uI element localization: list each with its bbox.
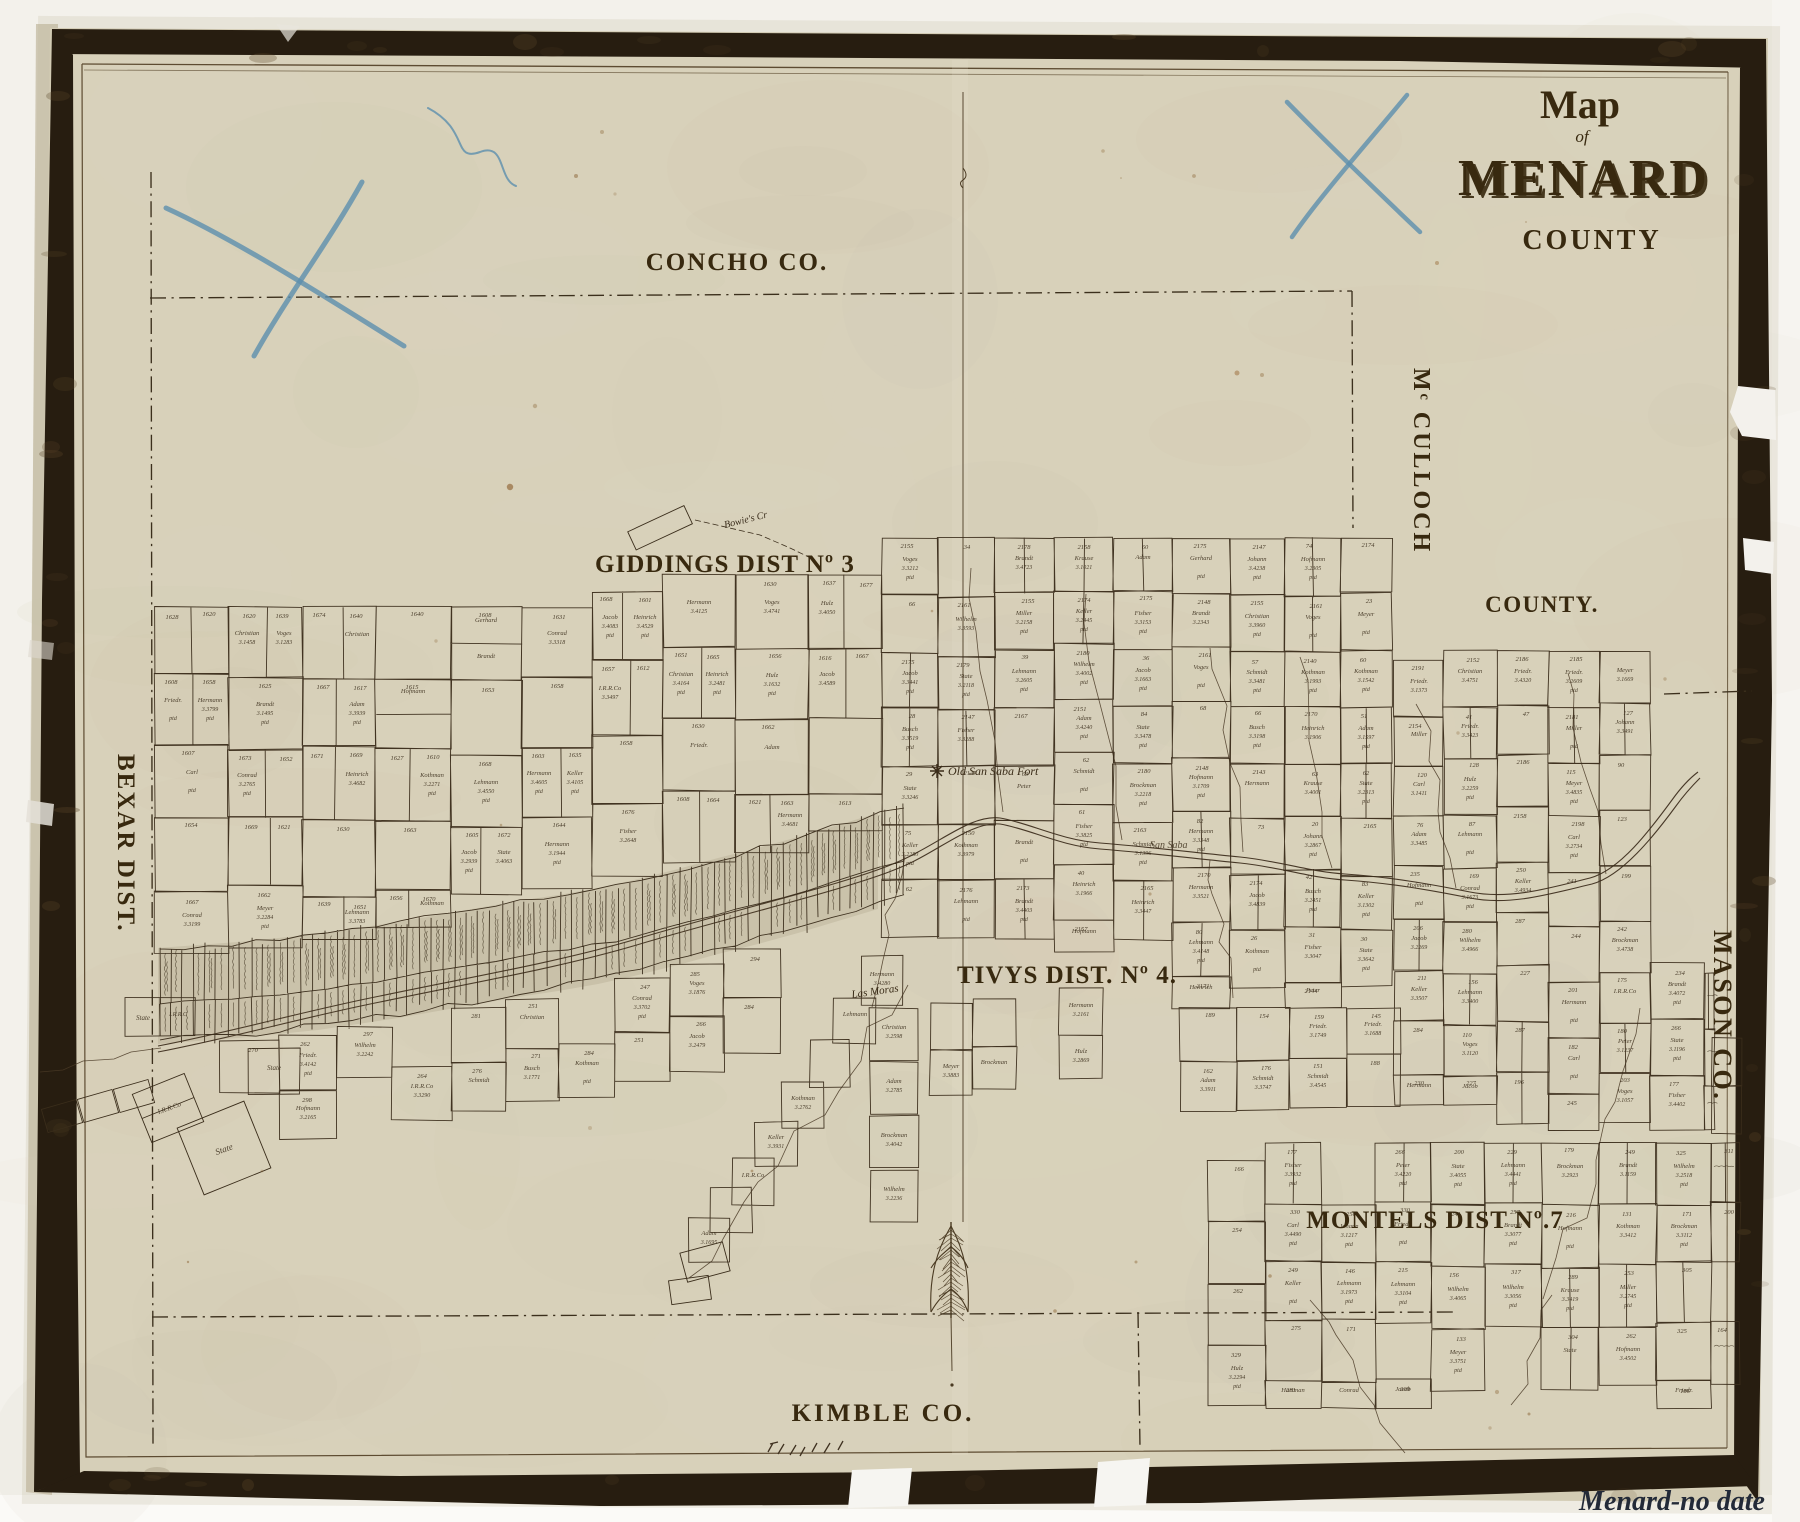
svg-text:State: State [1360,947,1373,954]
svg-text:2143: 2143 [1253,769,1267,776]
svg-text:Lehmann: Lehmann [1390,1281,1415,1288]
svg-text:1605: 1605 [466,832,480,839]
svg-text:68: 68 [1200,705,1207,712]
svg-text:1612: 1612 [637,665,651,672]
svg-text:2165: 2165 [1141,885,1155,892]
svg-text:Kothman: Kothman [419,900,444,907]
svg-text:ptd: ptd [260,924,270,930]
svg-text:3.1906: 3.1906 [1304,735,1322,741]
svg-text:Hulz: Hulz [1074,1048,1088,1055]
svg-text:Lehmann: Lehmann [1188,939,1213,946]
svg-text:Schmidt: Schmidt [1247,669,1268,676]
svg-text:Hermann: Hermann [777,812,803,819]
svg-text:3.1542: 3.1542 [1357,677,1375,684]
svg-text:2161: 2161 [1199,652,1212,659]
svg-text:ptd: ptd [1569,688,1579,694]
svg-text:249: 249 [1288,1267,1299,1274]
svg-text:162: 162 [1203,1068,1214,1075]
svg-text:ptd: ptd [1361,744,1371,750]
svg-text:CONCHO CO.: CONCHO CO. [646,249,829,276]
svg-text:2185: 2185 [1570,656,1584,663]
svg-text:3.3960: 3.3960 [1248,623,1266,629]
svg-text:196: 196 [1514,1079,1525,1086]
svg-text:3.3593: 3.3593 [957,626,975,632]
svg-text:Hermann: Hermann [1068,1002,1094,1009]
svg-text:COUNTY.: COUNTY. [1485,592,1599,617]
svg-text:42: 42 [1306,874,1313,881]
svg-text:3.2605: 3.2605 [1015,678,1033,684]
svg-text:ptd: ptd [1508,1181,1518,1187]
svg-text:Carl: Carl [186,769,198,776]
svg-text:KIMBLE CO.: KIMBLE CO. [792,1400,975,1427]
svg-text:Adam: Adam [885,1078,901,1085]
svg-text:2173: 2173 [1017,885,1031,892]
svg-text:251: 251 [634,1037,644,1044]
svg-text:3.3939: 3.3939 [348,711,366,717]
svg-text:3.2158: 3.2158 [1015,620,1033,626]
svg-text:Kothman: Kothman [1353,668,1378,675]
svg-text:ptd: ptd [1565,1244,1575,1250]
svg-text:1640: 1640 [350,613,364,620]
svg-text:3.3423: 3.3423 [1461,732,1479,739]
svg-text:3.1196: 3.1196 [1668,1047,1685,1053]
svg-text:3.1944: 3.1944 [548,850,566,857]
svg-text:63: 63 [1312,771,1319,778]
svg-text:COUNTY: COUNTY [1522,225,1661,256]
svg-text:Jacob: Jacob [1462,1083,1478,1090]
svg-text:ptd: ptd [1252,688,1262,694]
svg-text:66: 66 [909,601,916,608]
svg-text:Lehmann: Lehmann [1336,1280,1361,1287]
svg-text:Conrad: Conrad [237,772,258,779]
svg-text:270: 270 [248,1047,259,1054]
svg-text:Adam: Adam [1075,715,1091,722]
svg-text:154: 154 [1259,1013,1270,1020]
svg-text:ptd: ptd [905,689,915,695]
svg-text:234: 234 [1675,970,1686,977]
svg-text:Lehmann: Lehmann [344,909,369,916]
svg-text:Meyer: Meyer [256,905,274,912]
svg-text:3.3056: 3.3056 [1504,1294,1522,1300]
svg-text:266: 266 [1671,1025,1682,1032]
svg-text:Busch: Busch [1305,888,1321,895]
svg-text:3.3783: 3.3783 [348,919,366,925]
svg-text:Brandt: Brandt [1192,610,1210,617]
svg-text:ptd: ptd [1288,1299,1298,1305]
svg-text:Hermann: Hermann [869,971,895,978]
svg-text:3.4238: 3.4238 [1248,565,1266,572]
svg-text:Conrad: Conrad [547,630,568,637]
svg-text:Fisher: Fisher [957,727,975,734]
svg-text:3.1669: 3.1669 [1616,677,1634,683]
svg-text:127: 127 [1623,710,1634,717]
svg-text:80: 80 [1196,929,1203,936]
svg-text:329: 329 [1230,1352,1242,1359]
svg-text:2167: 2167 [1015,713,1029,720]
svg-text:3.4320: 3.4320 [1514,677,1532,684]
svg-text:199: 199 [1621,873,1632,880]
svg-text:3.1688: 3.1688 [1364,1031,1382,1037]
svg-text:Friedr.: Friedr. [1460,723,1479,730]
svg-text:84: 84 [1141,711,1148,718]
svg-text:2158: 2158 [1078,544,1092,551]
svg-text:330: 330 [1289,1209,1301,1216]
svg-text:ptd: ptd [1508,1241,1518,1247]
svg-text:Fisher: Fisher [1284,1162,1302,1169]
svg-text:Brockman: Brockman [1671,1223,1697,1230]
svg-text:2147: 2147 [1253,544,1267,551]
svg-text:State: State [1137,724,1150,731]
svg-text:ptd: ptd [1308,575,1318,581]
svg-text:State: State [1360,780,1373,787]
svg-text:Krause: Krause [1074,555,1094,562]
svg-text:3.2745: 3.2745 [1619,1293,1637,1300]
svg-text:215: 215 [1398,1267,1409,1274]
svg-text:Brockman: Brockman [1557,1163,1583,1170]
svg-text:1639: 1639 [276,613,290,620]
svg-text:3.3491: 3.3491 [1616,728,1634,735]
svg-text:3.4072: 3.4072 [1668,990,1686,997]
svg-text:Peter: Peter [1305,987,1321,994]
svg-text:3.2161: 3.2161 [1072,1012,1090,1018]
svg-text:275: 275 [1291,1325,1302,1332]
svg-text:284: 284 [1413,1027,1424,1034]
svg-text:3.2479: 3.2479 [688,1042,706,1049]
svg-text:166: 166 [1234,1166,1245,1173]
svg-text:Adam: Adam [700,1230,716,1237]
svg-text:30: 30 [1360,936,1368,943]
svg-text:ptd: ptd [1138,743,1148,749]
svg-text:Adam: Adam [1199,1077,1215,1084]
svg-text:3.2598: 3.2598 [885,1034,903,1040]
svg-text:Keller: Keller [1410,986,1428,993]
svg-text:1656: 1656 [390,895,404,902]
svg-text:76: 76 [1417,822,1424,829]
svg-text:ptd: ptd [1679,1242,1689,1248]
svg-text:3.1057: 3.1057 [1616,1098,1635,1104]
svg-text:171: 171 [1682,1211,1692,1218]
svg-text:Fisher: Fisher [1668,1092,1686,1099]
svg-text:1656: 1656 [769,653,783,660]
svg-text:Lehmann: Lehmann [473,779,498,786]
svg-text:MASON CO.: MASON CO. [1708,930,1737,1101]
svg-text:3.1283: 3.1283 [275,640,293,646]
svg-text:3.3507: 3.3507 [1410,996,1429,1002]
svg-text:325: 325 [1676,1328,1688,1335]
svg-text:Busch: Busch [902,726,918,733]
svg-text:131: 131 [1622,1211,1632,1218]
svg-text:Peter: Peter [1016,783,1032,790]
svg-text:Conrad: Conrad [1460,885,1481,892]
svg-text:ptd: ptd [1196,793,1206,799]
svg-text:2163: 2163 [1134,827,1148,834]
svg-text:Keller: Keller [566,770,584,777]
svg-text:62: 62 [1083,757,1090,764]
svg-text:ptd: ptd [961,917,971,923]
svg-text:1610: 1610 [427,754,441,761]
svg-text:Johann: Johann [1303,833,1322,840]
svg-text:Meyer: Meyer [1565,780,1583,787]
svg-text:ptd: ptd [1453,1368,1463,1374]
svg-text:289: 289 [1568,1274,1579,1281]
svg-text:216: 216 [1566,1212,1577,1219]
svg-text:ptd: ptd [676,690,686,696]
svg-text:285: 285 [690,971,701,978]
svg-text:Wilhelm: Wilhelm [1447,1286,1469,1293]
svg-text:Hofmann: Hofmann [400,688,425,695]
svg-text:3.3400: 3.3400 [1461,998,1479,1005]
svg-text:3.3883: 3.3883 [942,1073,960,1079]
svg-text:74: 74 [1306,543,1313,550]
svg-text:State: State [267,1064,281,1072]
svg-text:ptd: ptd [1569,799,1579,805]
svg-text:241: 241 [1567,878,1577,885]
svg-text:Meyer: Meyer [1357,611,1375,618]
svg-text:171: 171 [1346,1326,1356,1333]
svg-text:2152: 2152 [1467,657,1481,664]
svg-text:Christian: Christian [669,671,694,678]
svg-text:1640: 1640 [411,611,425,618]
svg-text:145: 145 [1371,1013,1382,1020]
svg-text:61: 61 [1079,809,1086,816]
svg-text:3.3519: 3.3519 [901,736,919,742]
svg-text:ptd: ptd [1398,1181,1408,1187]
svg-text:Meyer: Meyer [1616,667,1634,674]
svg-text:1674: 1674 [313,612,327,619]
svg-text:1644: 1644 [553,822,567,829]
svg-text:Brandt: Brandt [1619,1162,1637,1169]
svg-text:Keller: Keller [1514,878,1532,885]
svg-text:Fisher: Fisher [619,828,637,835]
svg-text:ptd: ptd [1252,967,1262,973]
svg-text:ptd: ptd [303,1071,313,1077]
svg-text:3.1597: 3.1597 [1357,735,1376,741]
svg-text:3.1302: 3.1302 [1357,903,1375,909]
svg-text:3.2445: 3.2445 [1075,617,1093,624]
svg-text:Kothman: Kothman [1615,1223,1640,1230]
svg-text:284: 284 [744,1004,755,1011]
svg-text:Meyer: Meyer [942,1063,960,1070]
svg-text:298: 298 [302,1097,313,1104]
svg-text:ptd: ptd [1079,680,1089,686]
svg-text:Heinrich: Heinrich [704,671,728,678]
svg-text:TIVYS DIST. Nº 4.: TIVYS DIST. Nº 4. [957,962,1177,989]
svg-text:2174: 2174 [1250,880,1264,887]
svg-text:3.2923: 3.2923 [1561,1173,1579,1179]
svg-text:Wilhelm: Wilhelm [1502,1284,1524,1291]
svg-text:3.4164: 3.4164 [672,680,690,687]
svg-text:3.4682: 3.4682 [348,780,366,787]
svg-text:ptd: ptd [1079,842,1089,848]
svg-text:Keller: Keller [1075,608,1093,615]
svg-text:Heinrich: Heinrich [1188,984,1212,991]
svg-text:ptd: ptd [712,690,722,696]
svg-text:Kothman: Kothman [1244,948,1269,955]
svg-text:2174: 2174 [1362,542,1376,549]
svg-text:176: 176 [1261,1065,1272,1072]
svg-text:Keller: Keller [1357,893,1375,900]
svg-text:189: 189 [1205,1012,1216,1019]
svg-text:ptd: ptd [1361,687,1371,693]
svg-text:Lehmann: Lehmann [1011,668,1036,675]
svg-text:1676: 1676 [622,809,636,816]
svg-text:3.1159: 3.1159 [1619,1172,1636,1178]
svg-text:2180: 2180 [1077,650,1091,657]
svg-text:1667: 1667 [317,684,331,691]
svg-text:ptd: ptd [1672,1056,1682,1062]
svg-text:ptd: ptd [481,798,491,804]
svg-text:87: 87 [1469,821,1476,828]
svg-text:73: 73 [1258,824,1265,831]
svg-text:1658: 1658 [203,679,217,686]
svg-text:123: 123 [1617,816,1628,823]
svg-text:ptd: ptd [1623,1303,1633,1309]
svg-text:3.3521: 3.3521 [1192,894,1210,900]
svg-text:1657: 1657 [602,666,616,673]
svg-text:60: 60 [1142,544,1149,551]
svg-text:ptd: ptd [1232,1384,1242,1390]
svg-text:Christian: Christian [1458,668,1483,675]
svg-text:1677: 1677 [860,582,874,589]
svg-text:Kothman: Kothman [953,842,978,849]
svg-text:3.4550: 3.4550 [477,788,495,795]
svg-text:Miller: Miller [1565,725,1583,732]
svg-text:3.1663: 3.1663 [1134,677,1152,683]
svg-text:2191: 2191 [1412,665,1425,672]
svg-text:3.4403: 3.4403 [1015,907,1033,914]
svg-text:Hofmann: Hofmann [1300,556,1325,563]
svg-text:245: 245 [1567,1100,1578,1107]
svg-text:3.4589: 3.4589 [818,680,836,687]
svg-text:247: 247 [640,984,651,991]
svg-text:Adam: Adam [1134,554,1150,561]
svg-text:ptd: ptd [1019,858,1029,864]
svg-text:41: 41 [1466,714,1473,721]
svg-text:3.3497: 3.3497 [601,694,620,701]
svg-text:156: 156 [1449,1272,1460,1279]
svg-text:133: 133 [1456,1336,1467,1343]
svg-text:1617: 1617 [354,685,368,692]
svg-text:2186: 2186 [1516,656,1530,663]
svg-text:ptd: ptd [905,745,915,751]
svg-text:ptd: ptd [640,633,650,639]
svg-text:State: State [498,849,511,856]
svg-text:40: 40 [1078,870,1085,877]
svg-text:Brandt: Brandt [1015,555,1033,562]
svg-text:39: 39 [1021,654,1029,661]
svg-text:Schmidt: Schmidt [1308,1073,1329,1080]
svg-text:1668: 1668 [479,761,493,768]
svg-text:262: 262 [1233,1288,1244,1295]
svg-text:Map: Map [1540,82,1620,127]
svg-text:ptd: ptd [552,860,562,866]
svg-text:1603: 1603 [532,753,546,760]
svg-text:3.1411: 3.1411 [1410,790,1427,797]
svg-text:Schmidt: Schmidt [1074,768,1095,775]
svg-text:ptd: ptd [1453,1182,1463,1188]
svg-text:Brandt: Brandt [1668,981,1686,988]
svg-text:Fisher: Fisher [1134,610,1152,617]
svg-text:1607: 1607 [182,750,196,757]
svg-text:1658: 1658 [620,740,634,747]
svg-text:Carl: Carl [1413,781,1425,788]
svg-text:Voges: Voges [902,556,918,563]
svg-text:3.4751: 3.4751 [1461,677,1479,684]
svg-text:229: 229 [1507,1149,1518,1156]
svg-text:3.1021: 3.1021 [1075,565,1093,571]
svg-text:Kothman: Kothman [790,1095,815,1102]
svg-text:3.4083: 3.4083 [601,623,619,630]
svg-text:ptd: ptd [1196,574,1206,580]
svg-text:3.3481: 3.3481 [1248,678,1266,685]
svg-text:Gerhard: Gerhard [475,617,498,624]
svg-text:Johann: Johann [1247,556,1266,563]
svg-text:2179: 2179 [957,662,971,669]
svg-text:ptd: ptd [1252,743,1262,749]
svg-text:242: 242 [1617,926,1628,933]
svg-text:Lehmann: Lehmann [1457,989,1482,996]
svg-text:ptd: ptd [1288,1181,1298,1187]
svg-text:Wilhelm: Wilhelm [1673,1163,1695,1170]
svg-text:1620: 1620 [243,613,257,620]
svg-text:Old San Saba Fort: Old San Saba Fort [948,764,1039,778]
svg-text:Voges: Voges [764,599,780,606]
svg-text:Brockman: Brockman [1612,937,1638,944]
svg-text:1658: 1658 [551,683,565,690]
svg-text:Friedr.: Friedr. [1409,678,1428,685]
svg-text:Jacob: Jacob [1249,892,1265,899]
svg-text:1627: 1627 [391,755,405,762]
svg-text:2155: 2155 [1251,600,1265,607]
svg-text:ptd: ptd [1398,1240,1408,1246]
svg-text:ptd: ptd [1308,907,1318,913]
svg-text:3.1632: 3.1632 [763,682,781,688]
svg-text:Brandt: Brandt [1015,898,1033,905]
svg-text:3.1993: 3.1993 [1304,679,1322,685]
svg-text:of: of [1575,127,1591,146]
svg-text:206: 206 [1413,925,1424,932]
svg-text:1601: 1601 [639,597,652,604]
svg-text:ptd: ptd [1252,575,1262,581]
svg-text:3.3348: 3.3348 [1192,837,1210,844]
svg-text:ptd: ptd [1308,688,1318,694]
svg-text:325: 325 [1675,1150,1687,1157]
svg-text:ptd: ptd [1196,958,1206,964]
svg-text:2170: 2170 [1305,711,1319,718]
svg-text:Schmidt: Schmidt [469,1077,490,1084]
svg-text:2175: 2175 [1140,595,1154,602]
svg-text:211: 211 [1417,975,1426,982]
svg-text:2155: 2155 [901,543,915,550]
svg-text:156: 156 [1468,979,1479,986]
svg-text:ptd: ptd [1361,799,1371,805]
svg-text:3.3932: 3.3932 [1284,1172,1302,1178]
svg-text:ptd: ptd [260,720,270,726]
svg-text:Friedr.: Friedr. [1674,1387,1693,1394]
svg-text:3.4240: 3.4240 [1075,724,1093,731]
svg-text:66: 66 [1255,710,1262,717]
svg-text:3.2118: 3.2118 [957,683,974,689]
svg-text:Brandt: Brandt [477,653,495,660]
svg-text:115: 115 [1566,769,1576,776]
svg-text:Adam: Adam [1357,725,1373,732]
svg-text:ptd: ptd [905,861,915,867]
svg-text:3.4605: 3.4605 [530,779,548,786]
svg-text:ptd: ptd [582,1079,592,1085]
svg-text:3.1120: 3.1120 [1461,1051,1478,1057]
svg-text:1665: 1665 [707,654,721,661]
svg-text:Wilhelm: Wilhelm [1459,937,1481,944]
